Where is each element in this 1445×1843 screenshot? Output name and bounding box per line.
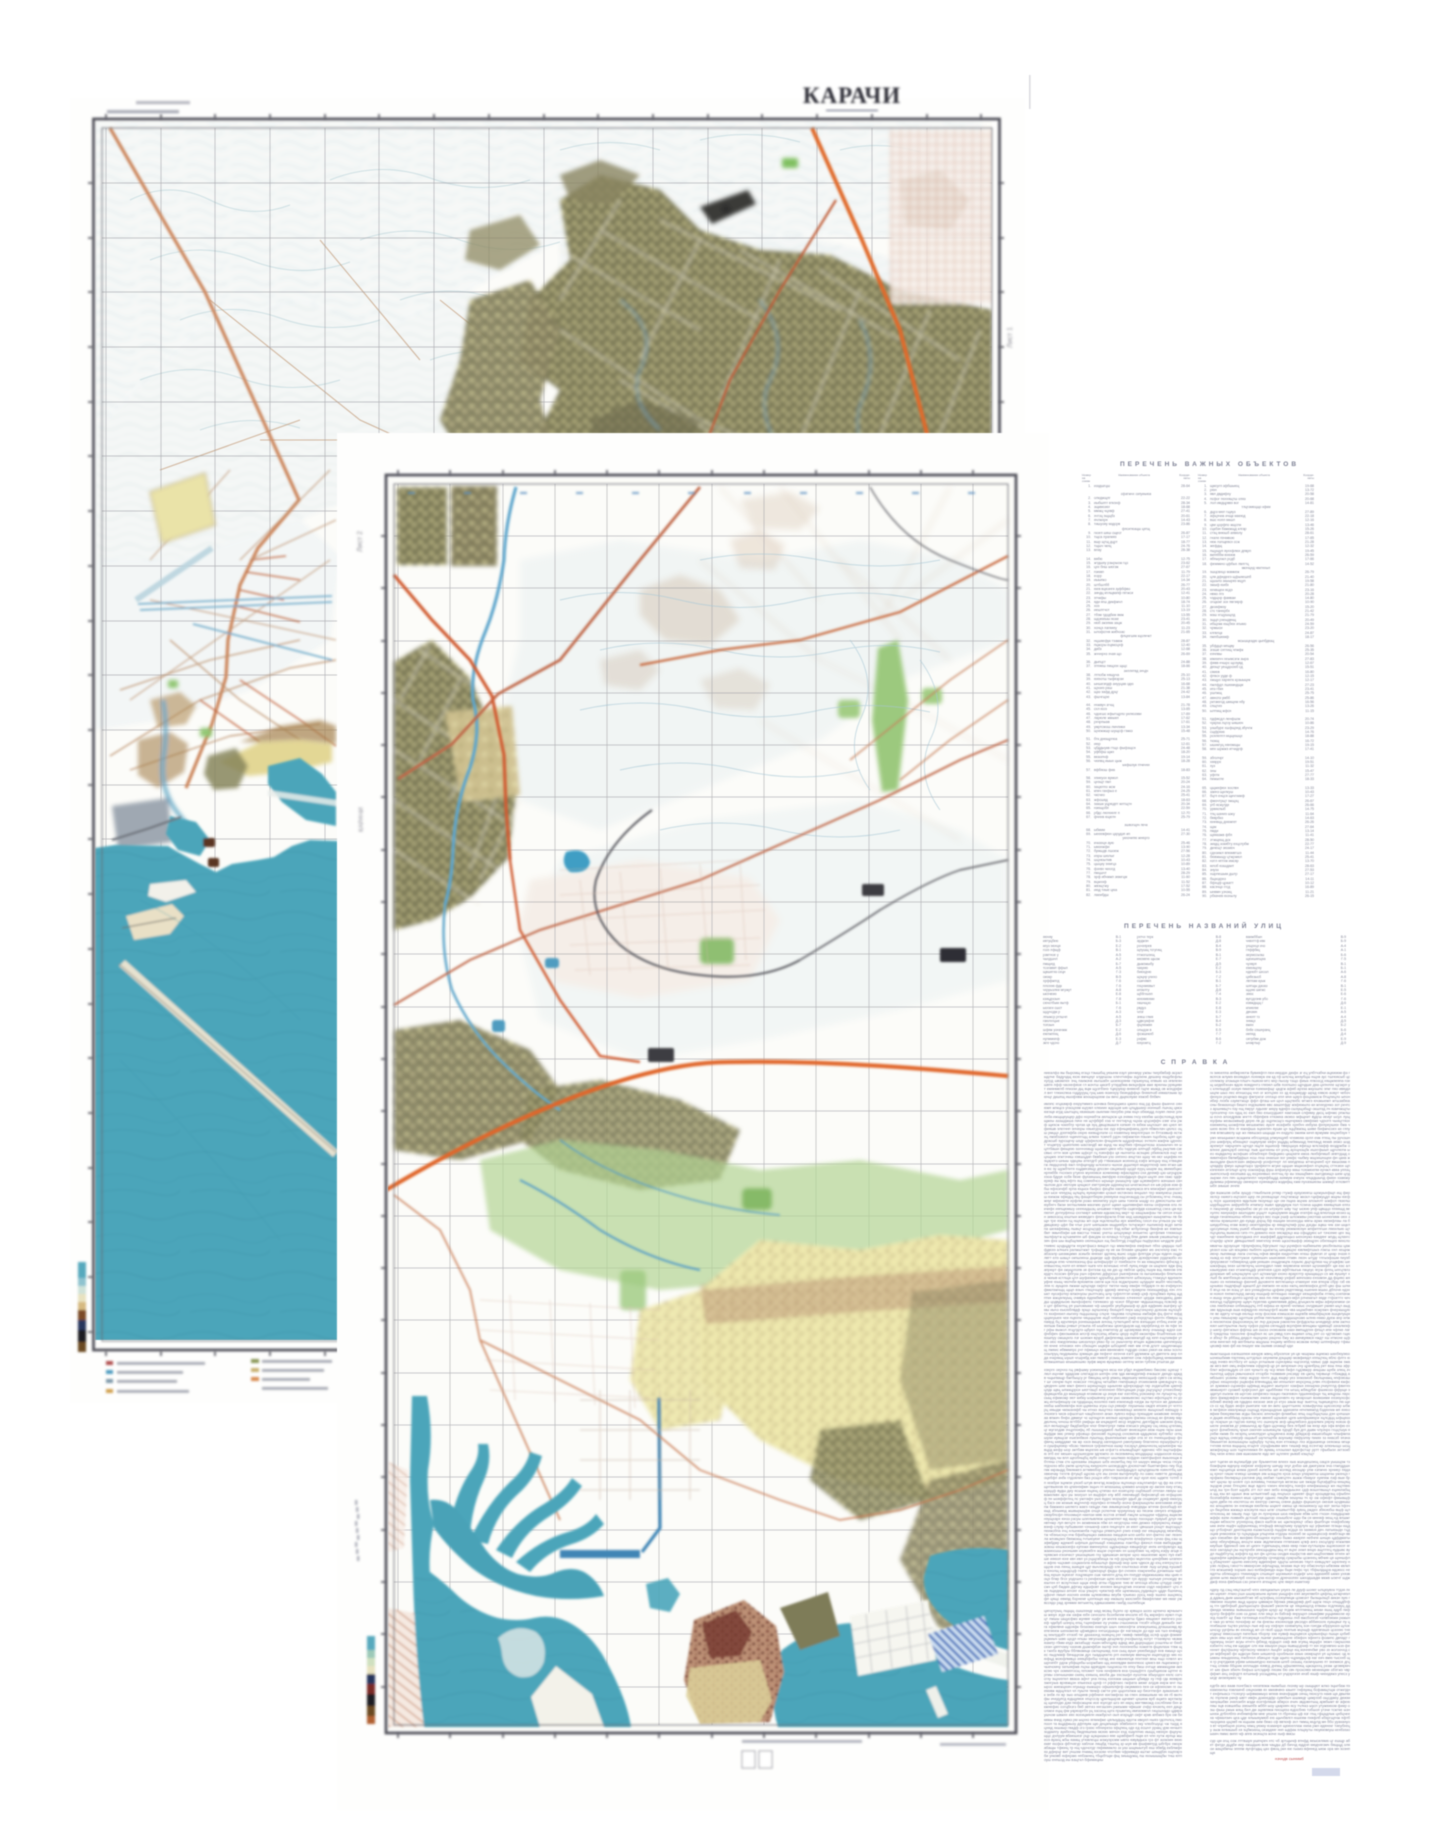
svg-text:Лист 2: Лист 2 (357, 531, 364, 552)
svg-text:КАРАЧИ: КАРАЧИ (803, 83, 901, 108)
svg-text:КАРАЧИ: КАРАЧИ (358, 807, 365, 832)
svg-text:Лист 1: Лист 1 (1007, 327, 1014, 348)
